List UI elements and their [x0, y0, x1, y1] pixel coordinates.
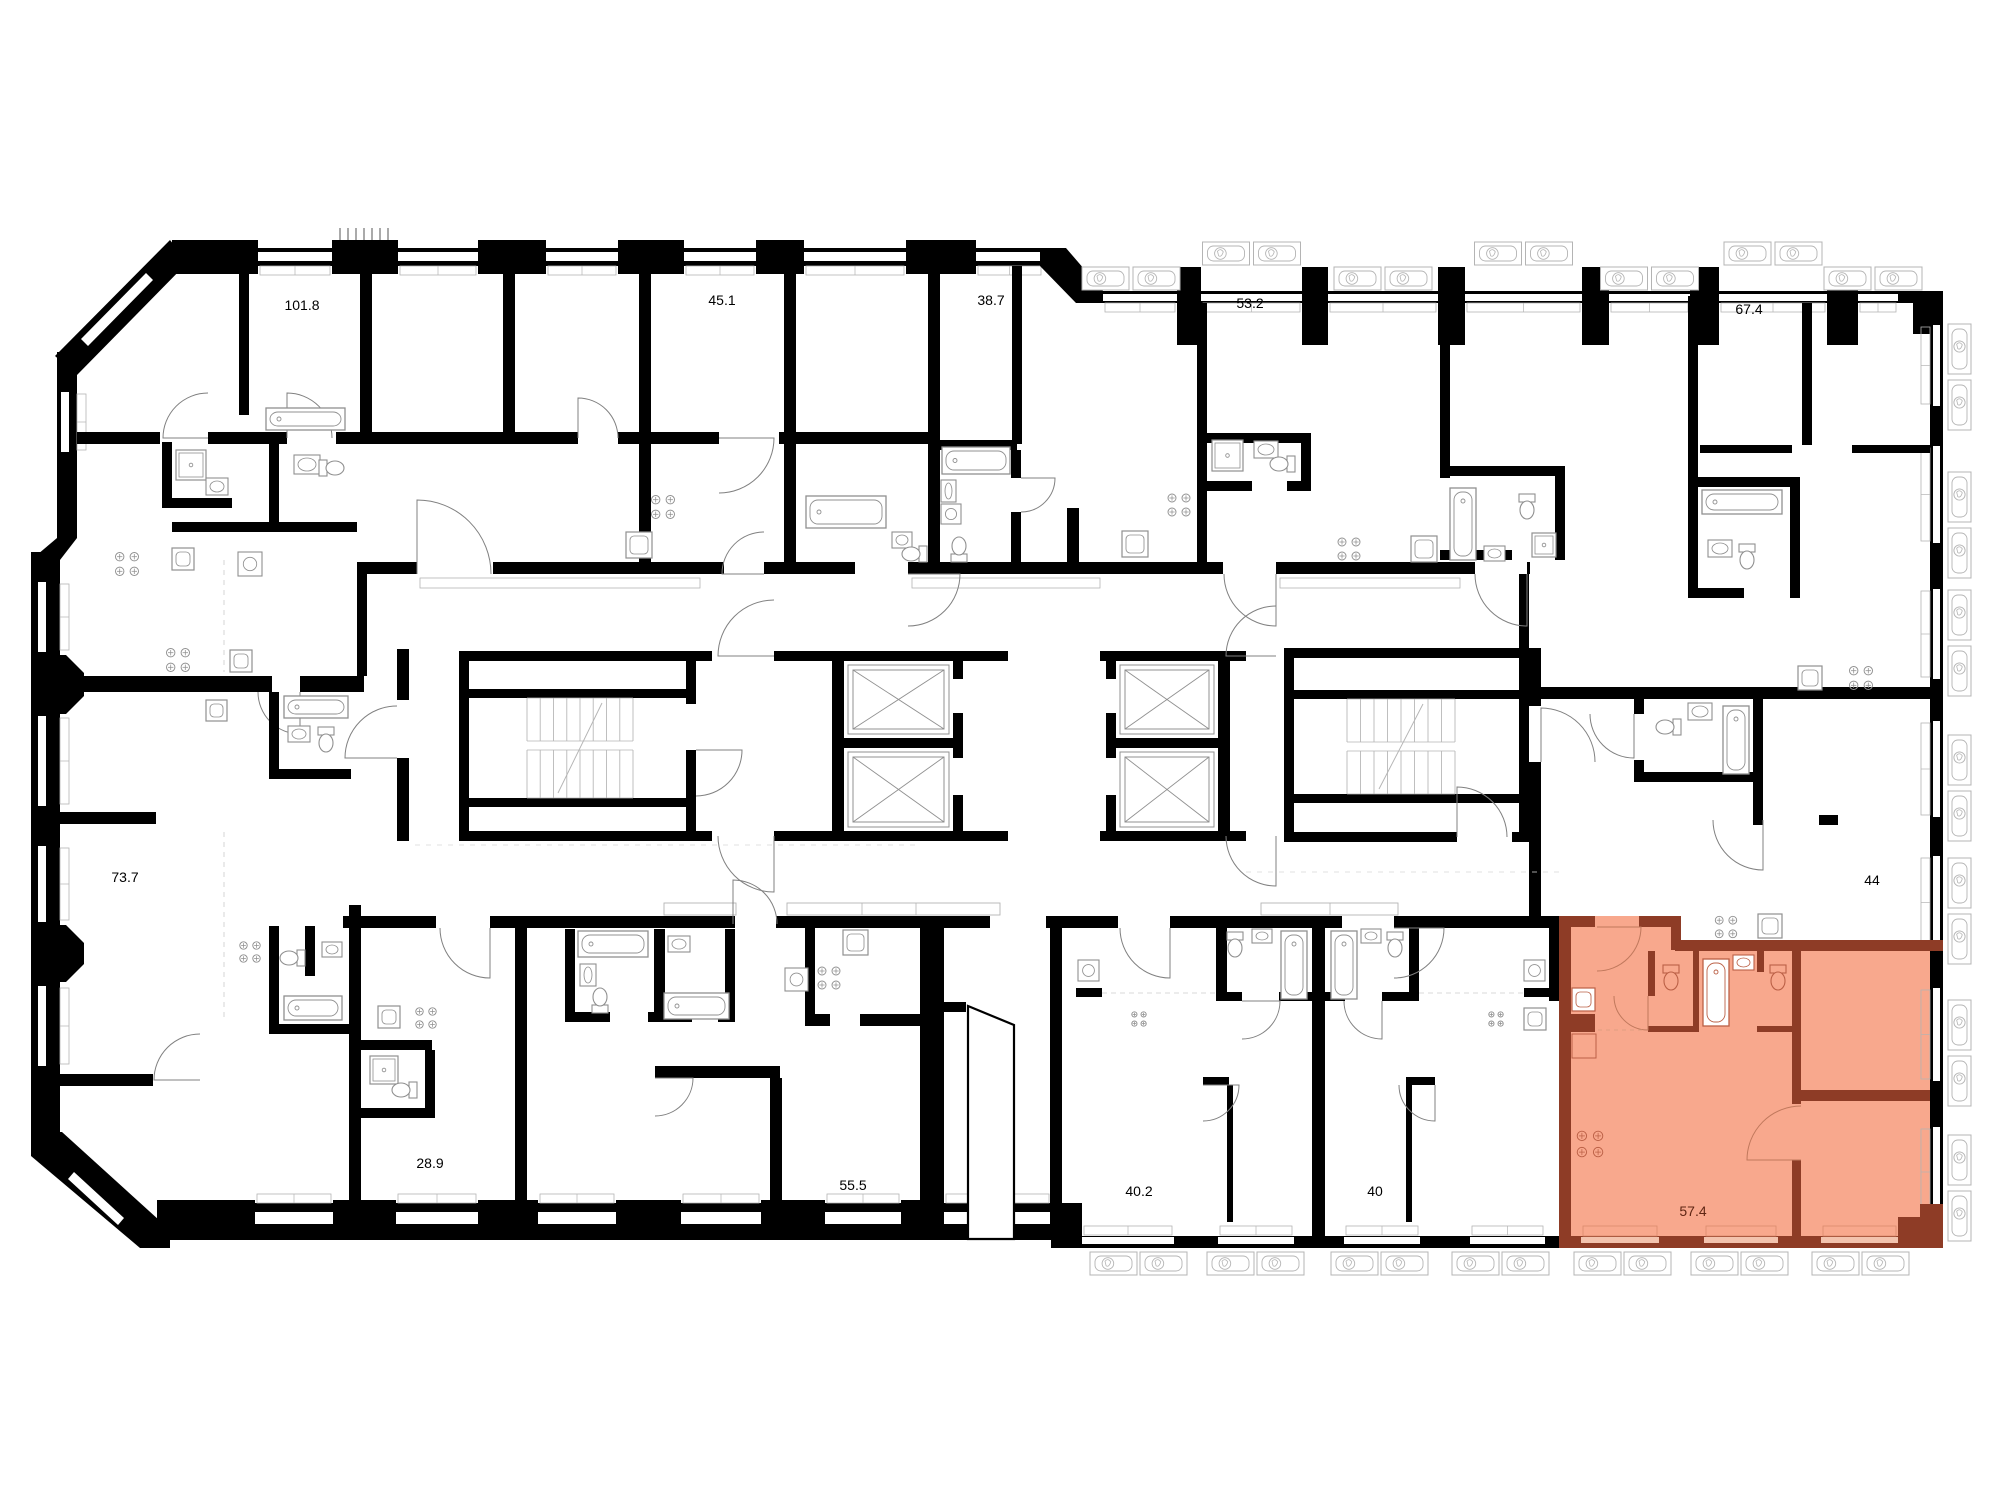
svg-text:28.9: 28.9	[416, 1155, 443, 1171]
svg-text:45.1: 45.1	[708, 292, 735, 308]
svg-text:67.4: 67.4	[1735, 301, 1762, 317]
svg-text:38.7: 38.7	[977, 292, 1004, 308]
svg-text:73.7: 73.7	[111, 869, 138, 885]
svg-text:53.2: 53.2	[1236, 295, 1263, 311]
svg-text:40.2: 40.2	[1125, 1183, 1152, 1199]
svg-text:101.8: 101.8	[284, 297, 319, 313]
svg-text:57.4: 57.4	[1679, 1203, 1706, 1219]
svg-text:55.5: 55.5	[839, 1177, 866, 1193]
svg-text:44: 44	[1864, 872, 1880, 888]
svg-text:40: 40	[1367, 1183, 1383, 1199]
